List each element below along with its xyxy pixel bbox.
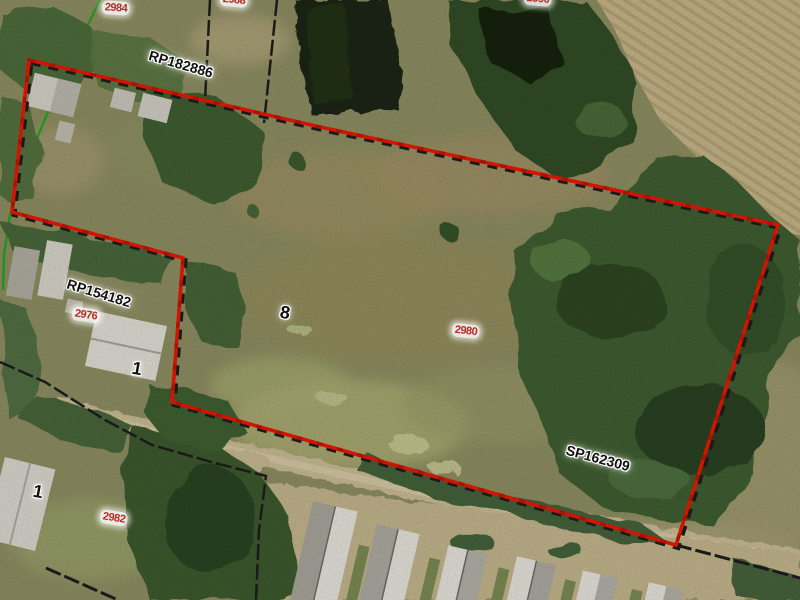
aerial-cadastral-map: RP182886 RP154182 SP162309 8 1 1 2984 29… [0, 0, 800, 600]
aerial-photo-layer [0, 0, 800, 600]
map-canvas[interactable] [0, 0, 800, 600]
